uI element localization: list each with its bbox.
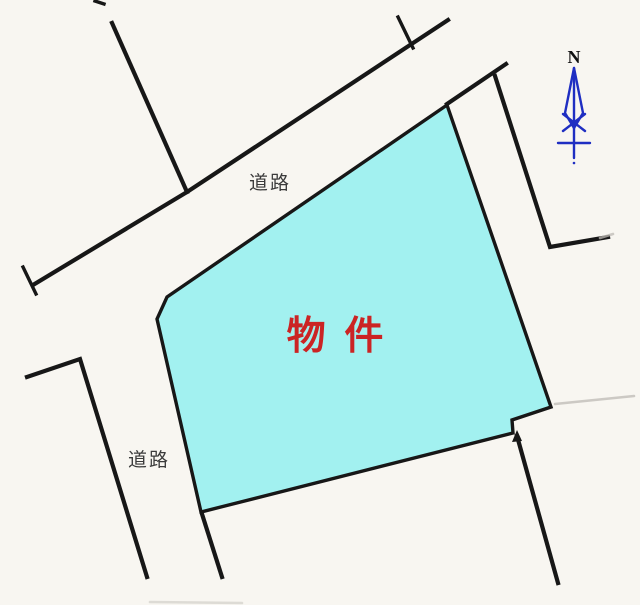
site-plan-map: 道路 道路 物 件 N: [0, 0, 640, 605]
north-label: N: [568, 47, 581, 67]
site-plan-drawing: 道路 道路 物 件 N: [0, 0, 640, 605]
top-edge-dash: [95, 1, 104, 4]
road-label-lower: 道路: [128, 449, 170, 471]
upper-road-top-tick: [398, 17, 413, 48]
road-label-upper: 道路: [249, 172, 291, 194]
property-parcel: [157, 105, 551, 512]
right-boundary-line: [495, 76, 608, 247]
north-arrow-end-dot: [573, 162, 576, 165]
faint-line-right-of-notch: [555, 396, 634, 404]
top-left-boundary-line: [112, 23, 187, 192]
north-arrow: N: [558, 47, 590, 164]
bottom-edge-smudge: [150, 602, 242, 603]
bottom-center-boundary-line: [202, 514, 222, 577]
property-label: 物 件: [287, 315, 388, 358]
upper-road-end-tick: [23, 267, 36, 294]
bottom-right-boundary-line: [517, 436, 558, 583]
